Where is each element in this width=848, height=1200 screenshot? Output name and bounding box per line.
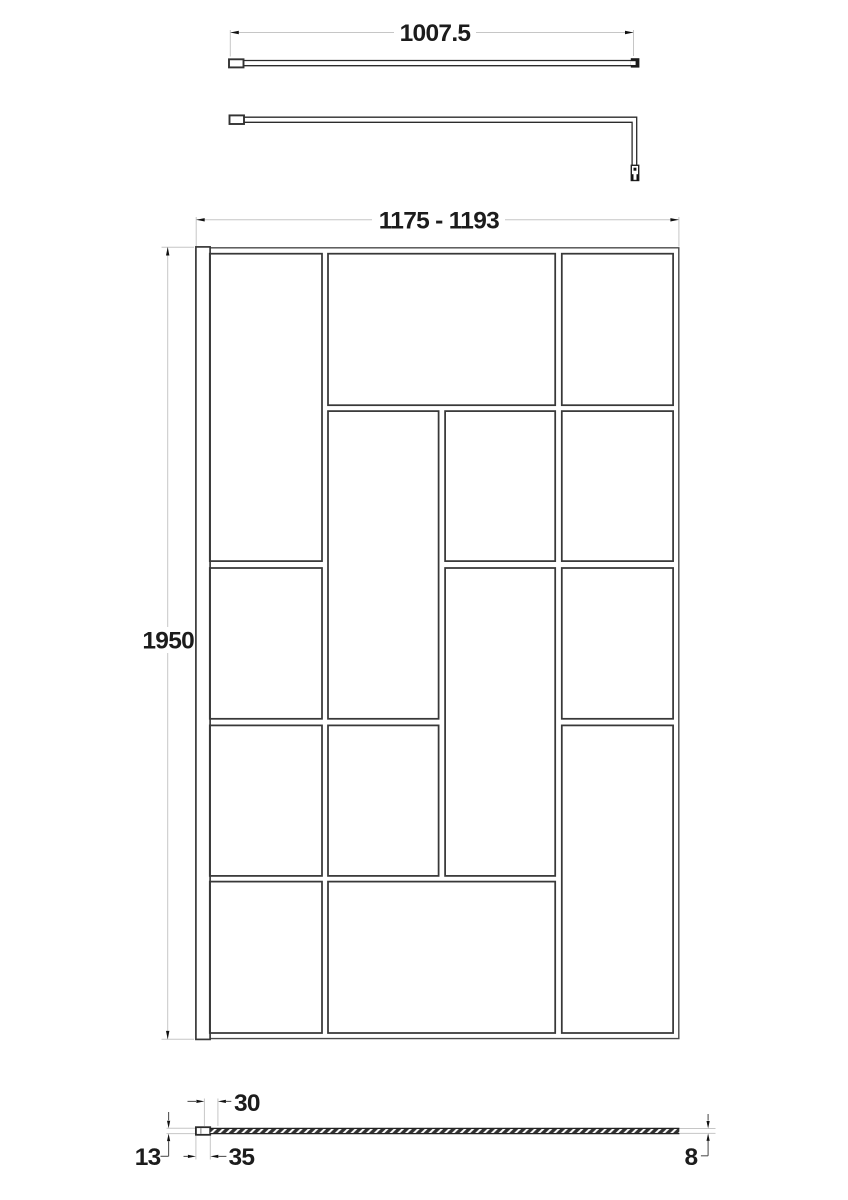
svg-text:13: 13 [135, 1144, 161, 1171]
svg-text:8: 8 [685, 1144, 698, 1171]
svg-text:30: 30 [234, 1090, 260, 1117]
svg-text:1950: 1950 [142, 628, 194, 655]
svg-text:35: 35 [229, 1144, 255, 1171]
svg-text:1175 - 1193: 1175 - 1193 [379, 207, 499, 234]
svg-text:1007.5: 1007.5 [400, 20, 471, 47]
